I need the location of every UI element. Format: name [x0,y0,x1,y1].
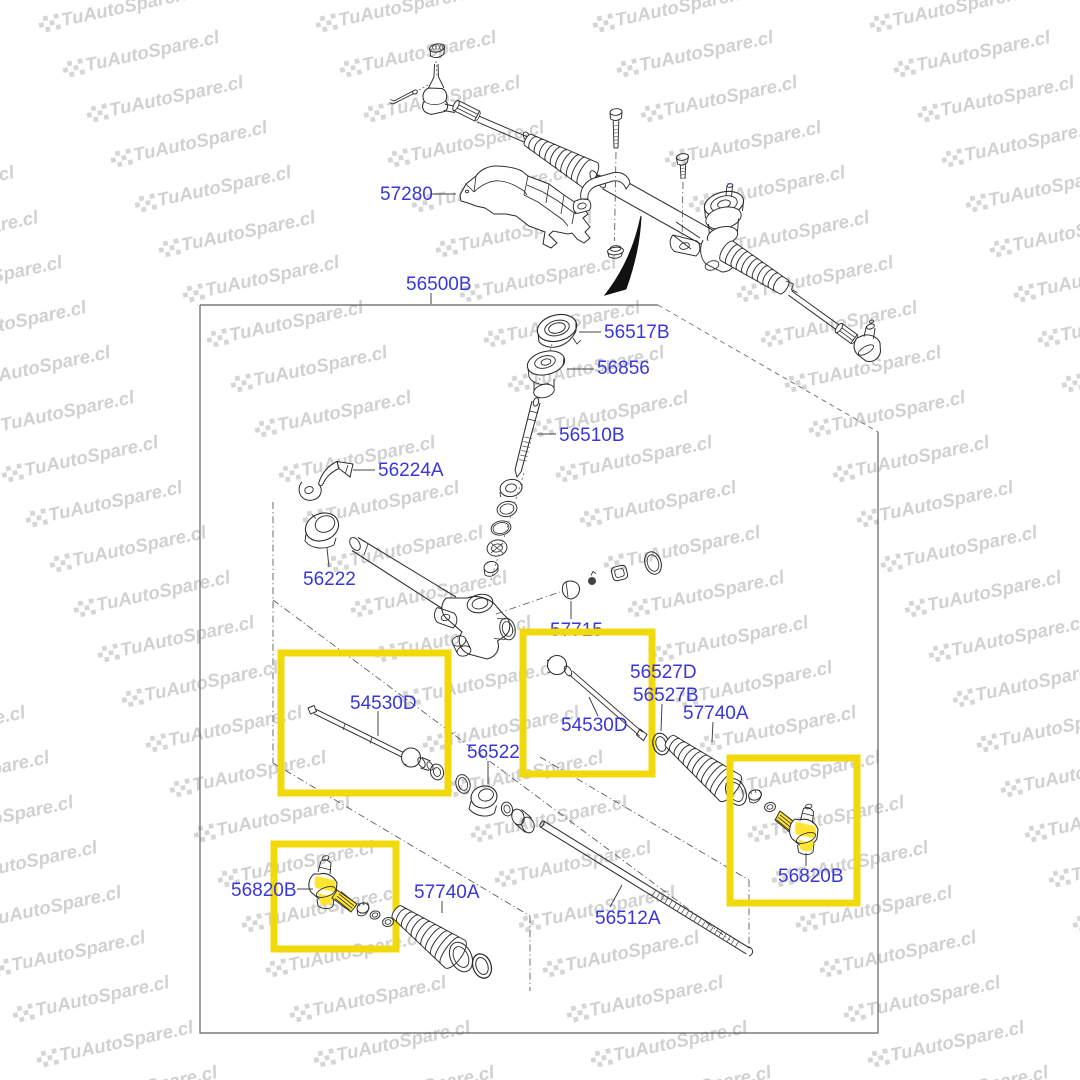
svg-text:56222: 56222 [303,569,356,590]
svg-text:56500B: 56500B [406,274,472,295]
svg-text:56527D: 56527D [630,662,697,683]
svg-text:56856: 56856 [597,358,650,379]
svg-text:57740A: 57740A [414,882,480,903]
svg-text:56510B: 56510B [559,425,625,446]
svg-text:57740A: 57740A [683,703,749,724]
svg-text:56517B: 56517B [604,322,670,343]
svg-text:54530D: 54530D [350,693,417,714]
svg-text:54530D: 54530D [561,715,628,736]
svg-text:57280: 57280 [380,184,433,205]
svg-text:56820B: 56820B [231,880,297,901]
svg-text:56820B: 56820B [778,866,844,887]
svg-text:56512A: 56512A [595,908,661,929]
svg-text:56224A: 56224A [378,460,444,481]
svg-text:56522: 56522 [467,742,520,763]
